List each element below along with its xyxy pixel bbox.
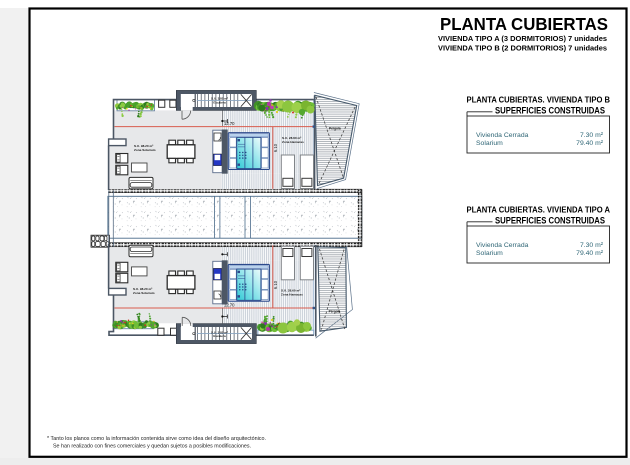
svg-text:Pérgola: Pérgola <box>329 309 341 313</box>
svg-text:Solarium: Solarium <box>476 250 503 257</box>
svg-text:Pérgola: Pérgola <box>329 127 341 131</box>
svg-text:79.40 m²: 79.40 m² <box>576 140 604 147</box>
svg-text:SUPERFICIES CONSTRUIDAS: SUPERFICIES CONSTRUIDAS <box>495 105 605 116</box>
svg-text:Escalera: Escalera <box>213 100 226 104</box>
svg-text:VIVIENDA TIPO B (2 DORMITORIOS: VIVIENDA TIPO B (2 DORMITORIOS) 7 unidad… <box>438 43 607 52</box>
svg-text:Vivienda Cerrada: Vivienda Cerrada <box>476 242 529 249</box>
svg-text:79.40 m²: 79.40 m² <box>576 250 604 257</box>
svg-text:Zona Solarium: Zona Solarium <box>133 291 155 295</box>
svg-text:PLANTA CUBIERTAS: PLANTA CUBIERTAS <box>440 14 608 34</box>
svg-text:PLANTA CUBIERTAS. VIVIENDA TIP: PLANTA CUBIERTAS. VIVIENDA TIPO A <box>467 205 611 215</box>
svg-text:Zona Hamacas: Zona Hamacas <box>281 292 303 296</box>
svg-text:6.10: 6.10 <box>273 143 278 152</box>
svg-text:Vivienda Cerrada: Vivienda Cerrada <box>476 132 529 139</box>
svg-text:Escalera: Escalera <box>213 334 226 338</box>
svg-text:7.30 m²: 7.30 m² <box>580 132 604 139</box>
svg-text:Zona Solarium: Zona Solarium <box>134 148 156 152</box>
svg-text:PLANTA CUBIERTAS. VIVIENDA TIP: PLANTA CUBIERTAS. VIVIENDA TIPO B <box>467 95 611 105</box>
svg-text:SUPERFICIES CONSTRUIDAS: SUPERFICIES CONSTRUIDAS <box>495 215 605 226</box>
svg-text:Zona Hamacas: Zona Hamacas <box>282 140 304 144</box>
svg-text:Solarium: Solarium <box>476 140 503 147</box>
svg-text:Se han realizado con fines com: Se han realizado con fines comerciales y… <box>53 444 251 450</box>
svg-text:* Tanto los planos como la inf: * Tanto los planos como la información c… <box>47 436 266 442</box>
svg-text:7.30 m²: 7.30 m² <box>580 242 604 249</box>
svg-text:6.10: 6.10 <box>273 280 278 289</box>
svg-text:VIVIENDA TIPO A (3 DORMITORIOS: VIVIENDA TIPO A (3 DORMITORIOS) 7 unidad… <box>438 34 607 43</box>
svg-text:12.70: 12.70 <box>224 121 235 126</box>
